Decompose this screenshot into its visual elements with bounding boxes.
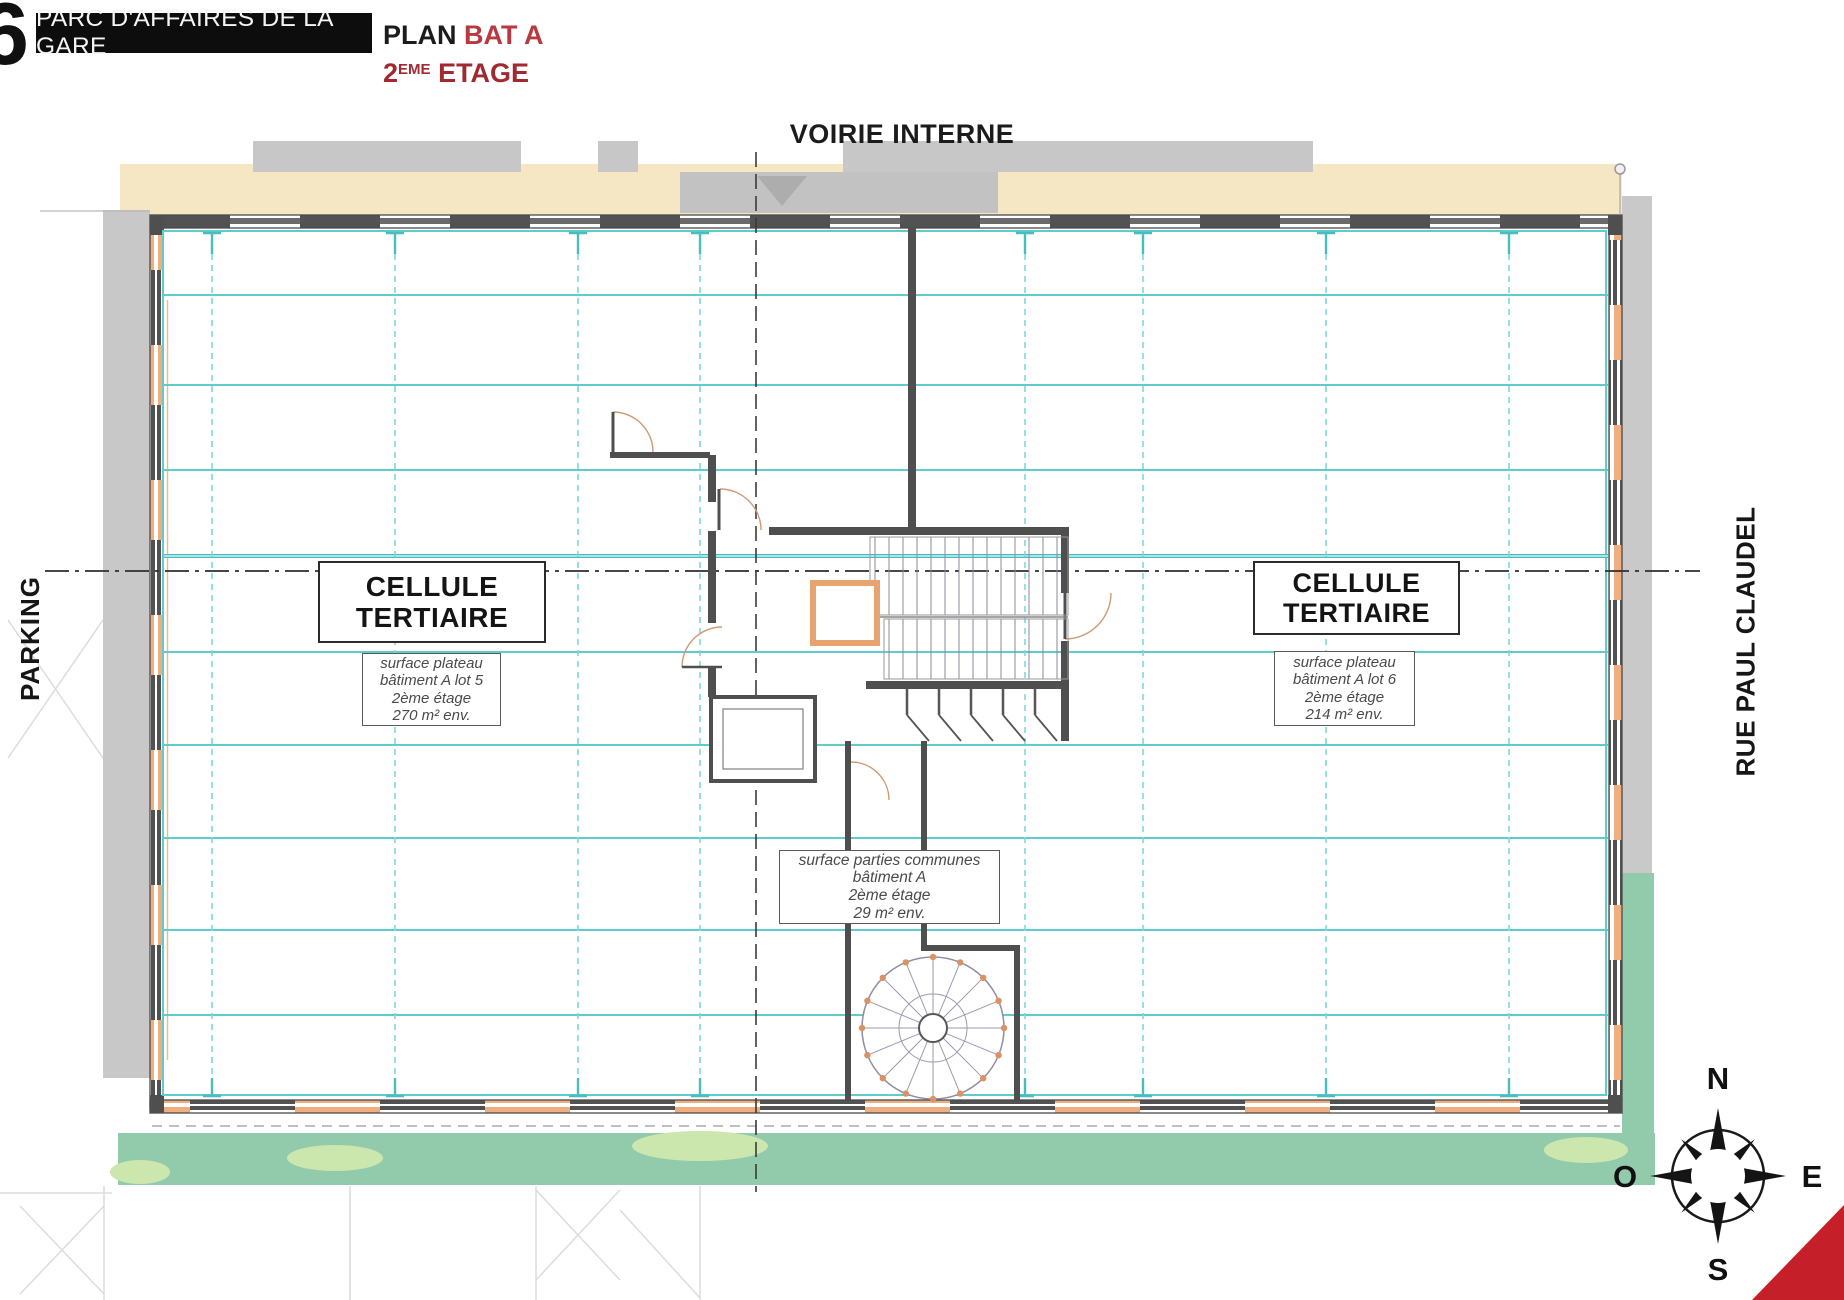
floor-label: 2EME ETAGE: [383, 58, 529, 89]
toilet-stalls: [907, 689, 1057, 741]
right-sidewalk-strip: [1622, 196, 1652, 873]
compass-west-label: O: [1613, 1159, 1637, 1194]
title-banner-text: PARC D'AFFAIRES DE LA GARE: [36, 5, 372, 61]
spiral-staircase: [859, 954, 1007, 1102]
plan-label: PLAN BAT A: [383, 20, 544, 51]
corner-red-triangle: [1752, 1205, 1844, 1300]
common-areas-surface-box: surface parties communes bâtiment A 2ème…: [779, 850, 1000, 924]
cell-right-surface-box: surface plateau bâtiment A lot 6 2ème ét…: [1274, 651, 1415, 726]
entrance-pad: [680, 172, 998, 213]
stairs: [870, 537, 1068, 679]
plan-word: PLAN: [383, 20, 457, 50]
technical-room: [711, 697, 815, 781]
floor-ordinal-suffix: EME: [398, 61, 431, 78]
compass-north-label: N: [1707, 1061, 1729, 1096]
top-wall: [150, 215, 1622, 228]
title-banner: PARC D'AFFAIRES DE LA GARE: [36, 13, 372, 53]
street-label-rue-paul-claudel: RUE PAUL CLAUDEL: [1722, 480, 1770, 802]
compass-south-label: S: [1708, 1252, 1729, 1287]
street-label-parking: PARKING: [6, 558, 54, 718]
cell-right-title-box: CELLULE TERTIAIRE: [1253, 561, 1460, 635]
floor-plan: N S E O: [0, 0, 1844, 1300]
compass-east-label: E: [1802, 1159, 1823, 1194]
floor-number: 2: [383, 58, 398, 88]
floor-word: ETAGE: [438, 58, 529, 88]
left-wall: [150, 228, 163, 1108]
page-number: 6: [0, 0, 29, 78]
left-sidewalk-strip: [103, 210, 150, 1078]
central-core: [610, 228, 1111, 1102]
cell-left-title-box: CELLULE TERTIAIRE: [318, 561, 546, 643]
cell-left-surface-box: surface plateau bâtiment A lot 5 2ème ét…: [362, 653, 501, 726]
street-label-voirie-interne: VOIRIE INTERNE: [740, 119, 1064, 150]
elevator-shaft: [813, 583, 877, 643]
voirie-interne-band: [120, 141, 1622, 215]
right-wall: [1609, 228, 1622, 1100]
bottom-wall: [150, 1100, 1622, 1113]
plan-building: BAT A: [464, 20, 543, 50]
